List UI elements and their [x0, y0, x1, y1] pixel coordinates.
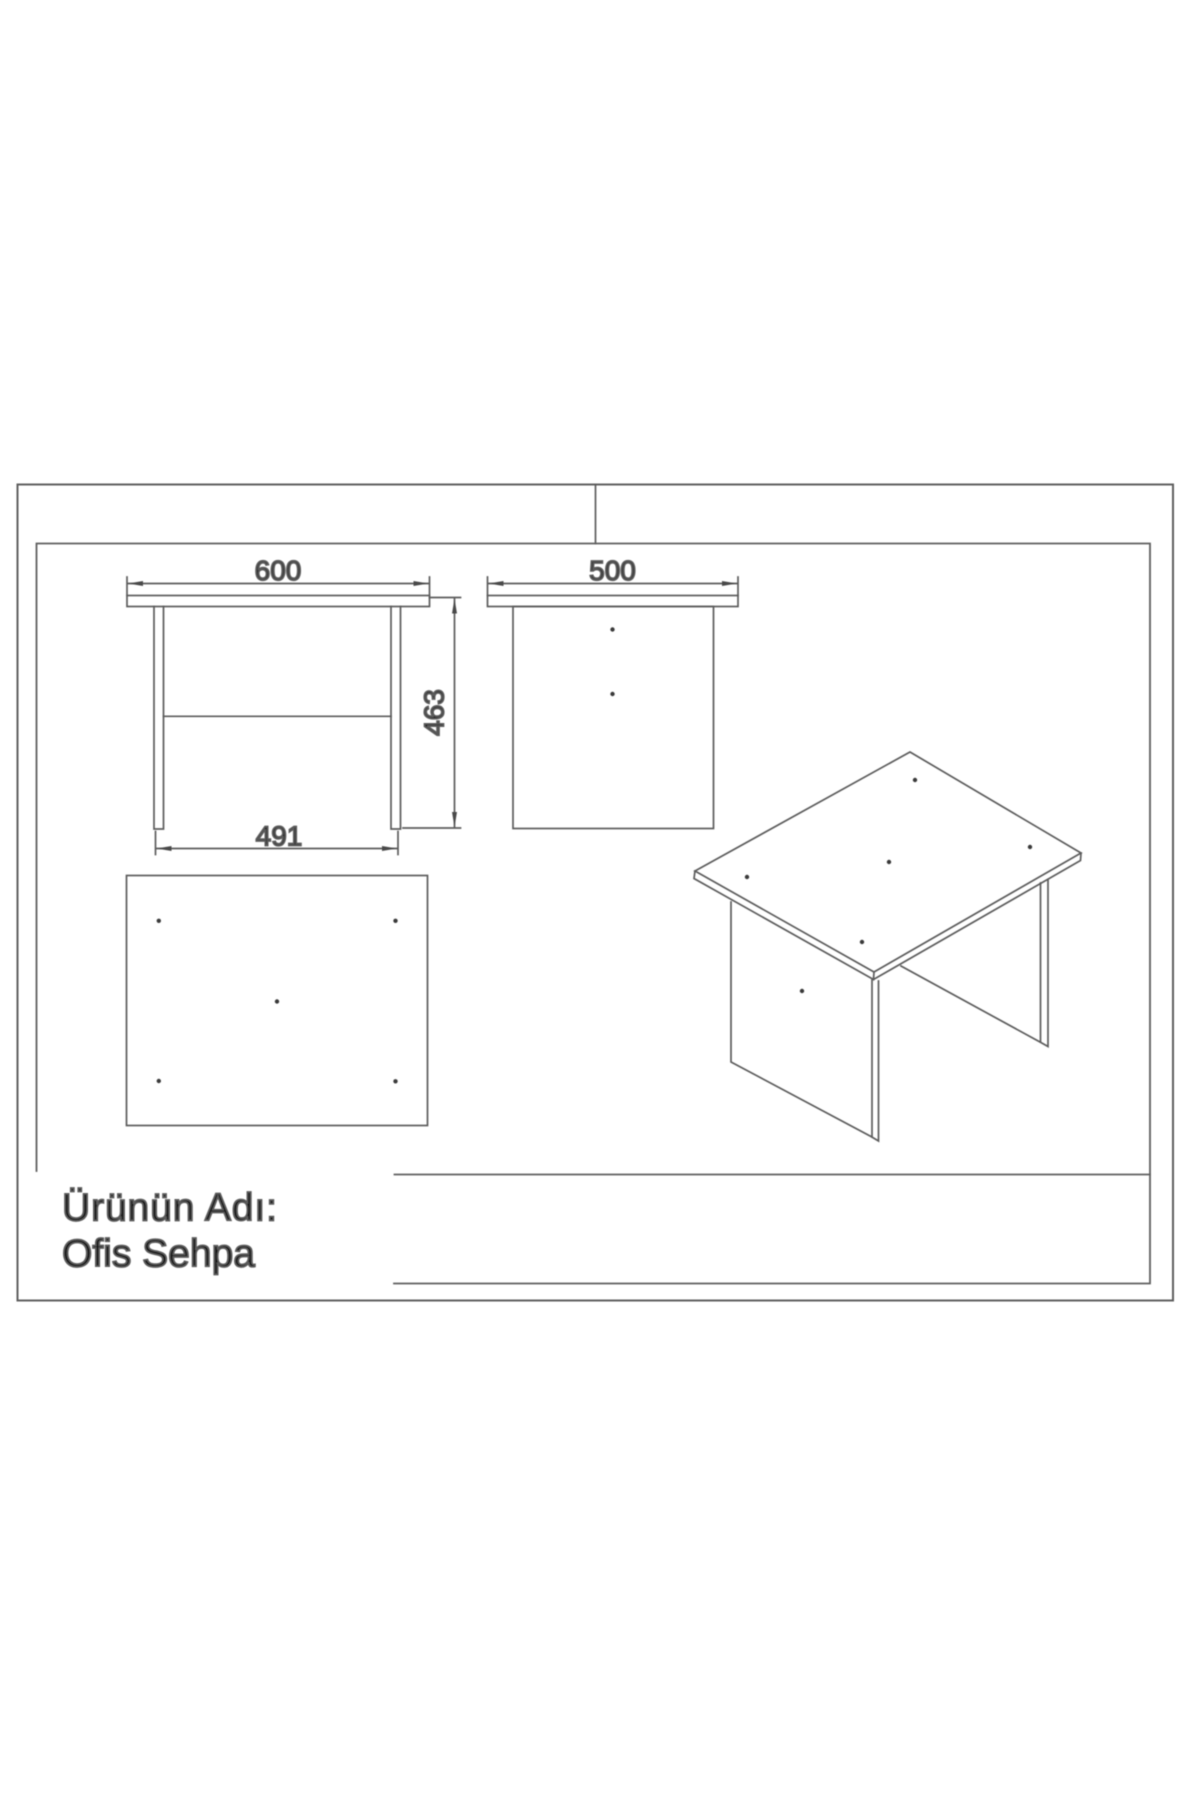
svg-text:Ofis Sehpa: Ofis Sehpa — [62, 1233, 255, 1276]
svg-text:Ürünün Adı:: Ürünün Adı: — [62, 1187, 278, 1230]
svg-text:491: 491 — [256, 821, 303, 852]
svg-text:500: 500 — [589, 555, 636, 586]
svg-text:600: 600 — [255, 555, 302, 586]
svg-text:463: 463 — [419, 689, 450, 736]
